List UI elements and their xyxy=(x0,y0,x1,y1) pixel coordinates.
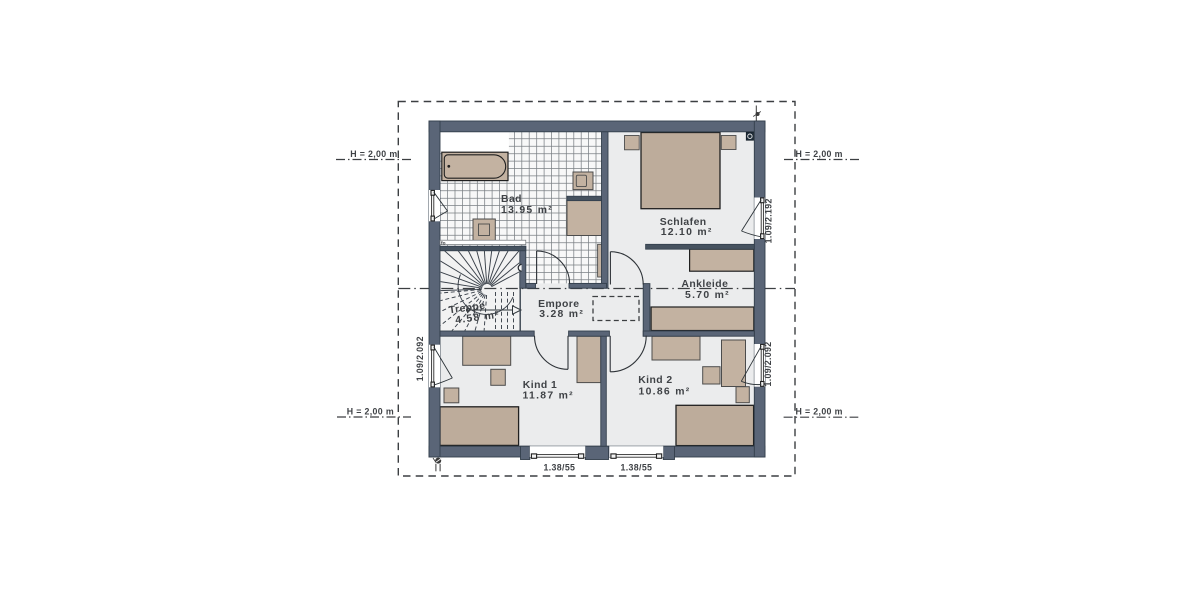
svg-text:12.10 m²: 12.10 m² xyxy=(661,227,713,238)
svg-text:H = 2,00 m: H = 2,00 m xyxy=(796,407,843,417)
svg-text:H = 2,00 m: H = 2,00 m xyxy=(796,149,843,159)
svg-text:1.09/2.092: 1.09/2.092 xyxy=(763,341,773,386)
svg-text:1.09/2.092: 1.09/2.092 xyxy=(415,336,425,381)
svg-text:H = 2,00 m: H = 2,00 m xyxy=(350,149,397,159)
svg-text:11.87 m²: 11.87 m² xyxy=(523,390,574,401)
svg-text:10.86 m²: 10.86 m² xyxy=(639,386,691,397)
svg-text:1.38/55: 1.38/55 xyxy=(544,462,576,472)
svg-text:fo: fo xyxy=(441,241,446,247)
svg-text:5.70 m²: 5.70 m² xyxy=(685,290,730,301)
svg-text:H = 2,00 m: H = 2,00 m xyxy=(347,407,394,417)
svg-text:Bad: Bad xyxy=(501,194,522,205)
svg-text:Kind 1: Kind 1 xyxy=(523,380,557,391)
svg-text:Ankleide: Ankleide xyxy=(681,279,728,290)
svg-text:13.95 m²: 13.95 m² xyxy=(501,205,553,216)
svg-text:1.38/55: 1.38/55 xyxy=(621,462,653,472)
svg-text:3.28 m²: 3.28 m² xyxy=(539,309,584,320)
svg-text:Kind 2: Kind 2 xyxy=(638,375,672,386)
svg-text:1.09/2.192: 1.09/2.192 xyxy=(763,198,773,243)
